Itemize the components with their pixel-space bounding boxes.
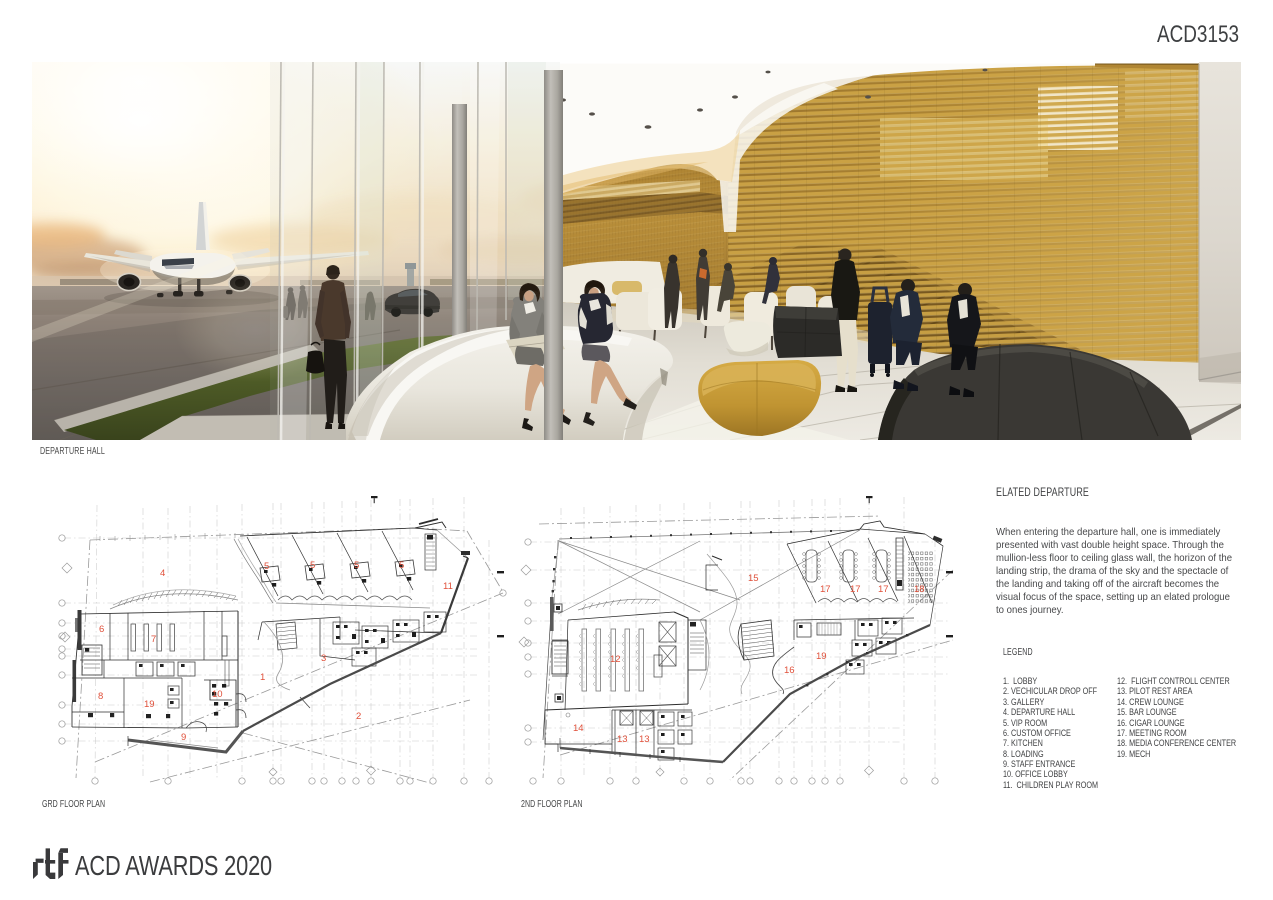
- svg-text:2: 2: [356, 711, 361, 722]
- svg-text:19: 19: [816, 651, 827, 662]
- svg-text:9: 9: [181, 732, 186, 743]
- svg-text:3: 3: [321, 653, 326, 664]
- svg-text:5: 5: [310, 560, 315, 571]
- svg-text:5: 5: [399, 560, 404, 571]
- svg-text:10: 10: [212, 689, 223, 700]
- svg-text:14: 14: [573, 723, 584, 734]
- svg-text:5: 5: [264, 561, 269, 572]
- svg-text:17: 17: [878, 584, 889, 595]
- svg-text:1: 1: [260, 672, 265, 683]
- svg-text:6: 6: [99, 624, 104, 635]
- svg-text:13: 13: [617, 734, 628, 745]
- svg-text:16: 16: [784, 665, 795, 676]
- svg-text:8: 8: [98, 691, 103, 702]
- svg-text:12: 12: [610, 654, 621, 665]
- svg-text:13: 13: [639, 734, 650, 745]
- svg-text:5: 5: [354, 560, 359, 571]
- svg-text:15: 15: [748, 573, 759, 584]
- svg-text:18: 18: [914, 584, 925, 595]
- svg-text:17: 17: [850, 584, 861, 595]
- svg-text:11: 11: [443, 581, 453, 592]
- svg-text:17: 17: [820, 584, 831, 595]
- svg-text:7: 7: [151, 634, 156, 645]
- svg-text:19: 19: [144, 699, 155, 710]
- svg-text:4: 4: [160, 568, 165, 579]
